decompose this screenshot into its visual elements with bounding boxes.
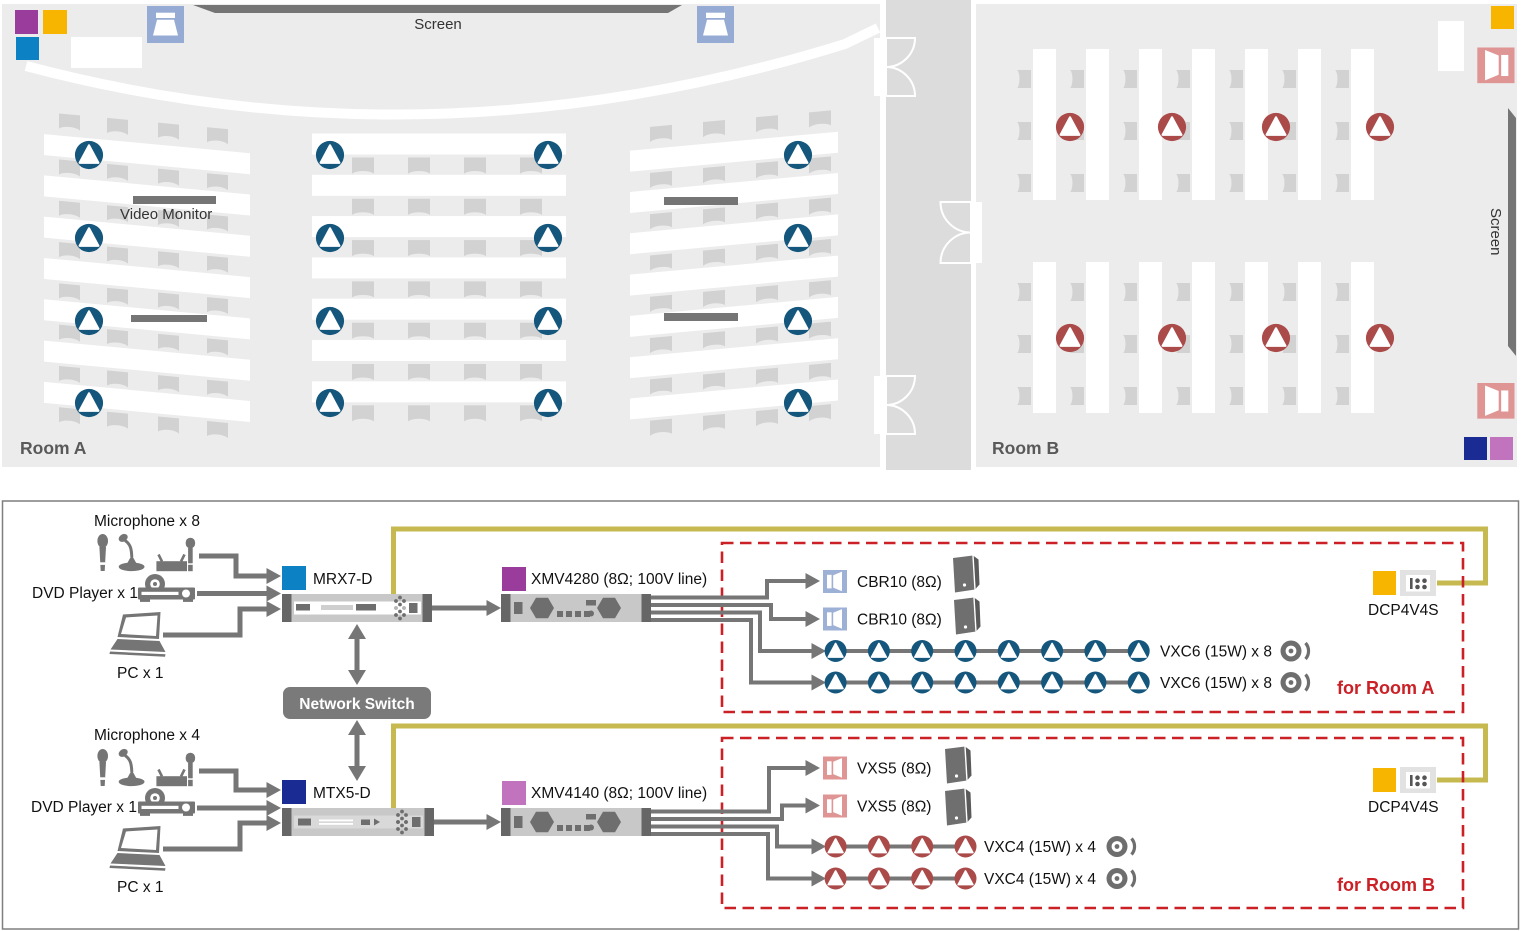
svg-text:DVD Player x 1: DVD Player x 1 [31, 799, 137, 816]
svg-text:CBR10 (8Ω): CBR10 (8Ω) [857, 612, 942, 629]
svg-text:DCP4V4S: DCP4V4S [1368, 602, 1439, 619]
svg-text:Microphone x 8: Microphone x 8 [94, 513, 200, 530]
svg-text:for Room B: for Room B [1337, 875, 1435, 895]
svg-text:Screen: Screen [1487, 208, 1504, 256]
svg-text:VXC4 (15W) x 4: VXC4 (15W) x 4 [984, 839, 1096, 856]
svg-text:VXS5 (8Ω): VXS5 (8Ω) [857, 761, 931, 778]
svg-text:VXS5 (8Ω): VXS5 (8Ω) [857, 799, 931, 816]
svg-text:VXC4 (15W) x 4: VXC4 (15W) x 4 [984, 871, 1096, 888]
svg-text:Room A: Room A [20, 438, 87, 458]
svg-text:CBR10 (8Ω): CBR10 (8Ω) [857, 574, 942, 591]
svg-text:Microphone x 4: Microphone x 4 [94, 727, 200, 744]
svg-text:for Room A: for Room A [1337, 678, 1434, 698]
svg-text:DCP4V4S: DCP4V4S [1368, 799, 1439, 816]
svg-text:PC x 1: PC x 1 [117, 665, 164, 682]
svg-text:Room B: Room B [992, 438, 1059, 458]
svg-text:Screen: Screen [414, 16, 462, 33]
svg-text:MRX7-D: MRX7-D [313, 571, 372, 588]
svg-text:DVD Player x 1: DVD Player x 1 [32, 585, 138, 602]
svg-text:PC x 1: PC x 1 [117, 879, 164, 896]
svg-text:MTX5-D: MTX5-D [313, 785, 371, 802]
svg-text:Video Monitor: Video Monitor [120, 206, 212, 223]
svg-text:Network Switch: Network Switch [299, 696, 414, 713]
svg-text:XMV4280 (8Ω; 100V line): XMV4280 (8Ω; 100V line) [531, 571, 707, 588]
svg-text:VXC6 (15W) x 8: VXC6 (15W) x 8 [1160, 675, 1272, 692]
svg-text:VXC6 (15W) x 8: VXC6 (15W) x 8 [1160, 644, 1272, 661]
svg-text:XMV4140 (8Ω; 100V line): XMV4140 (8Ω; 100V line) [531, 785, 707, 802]
